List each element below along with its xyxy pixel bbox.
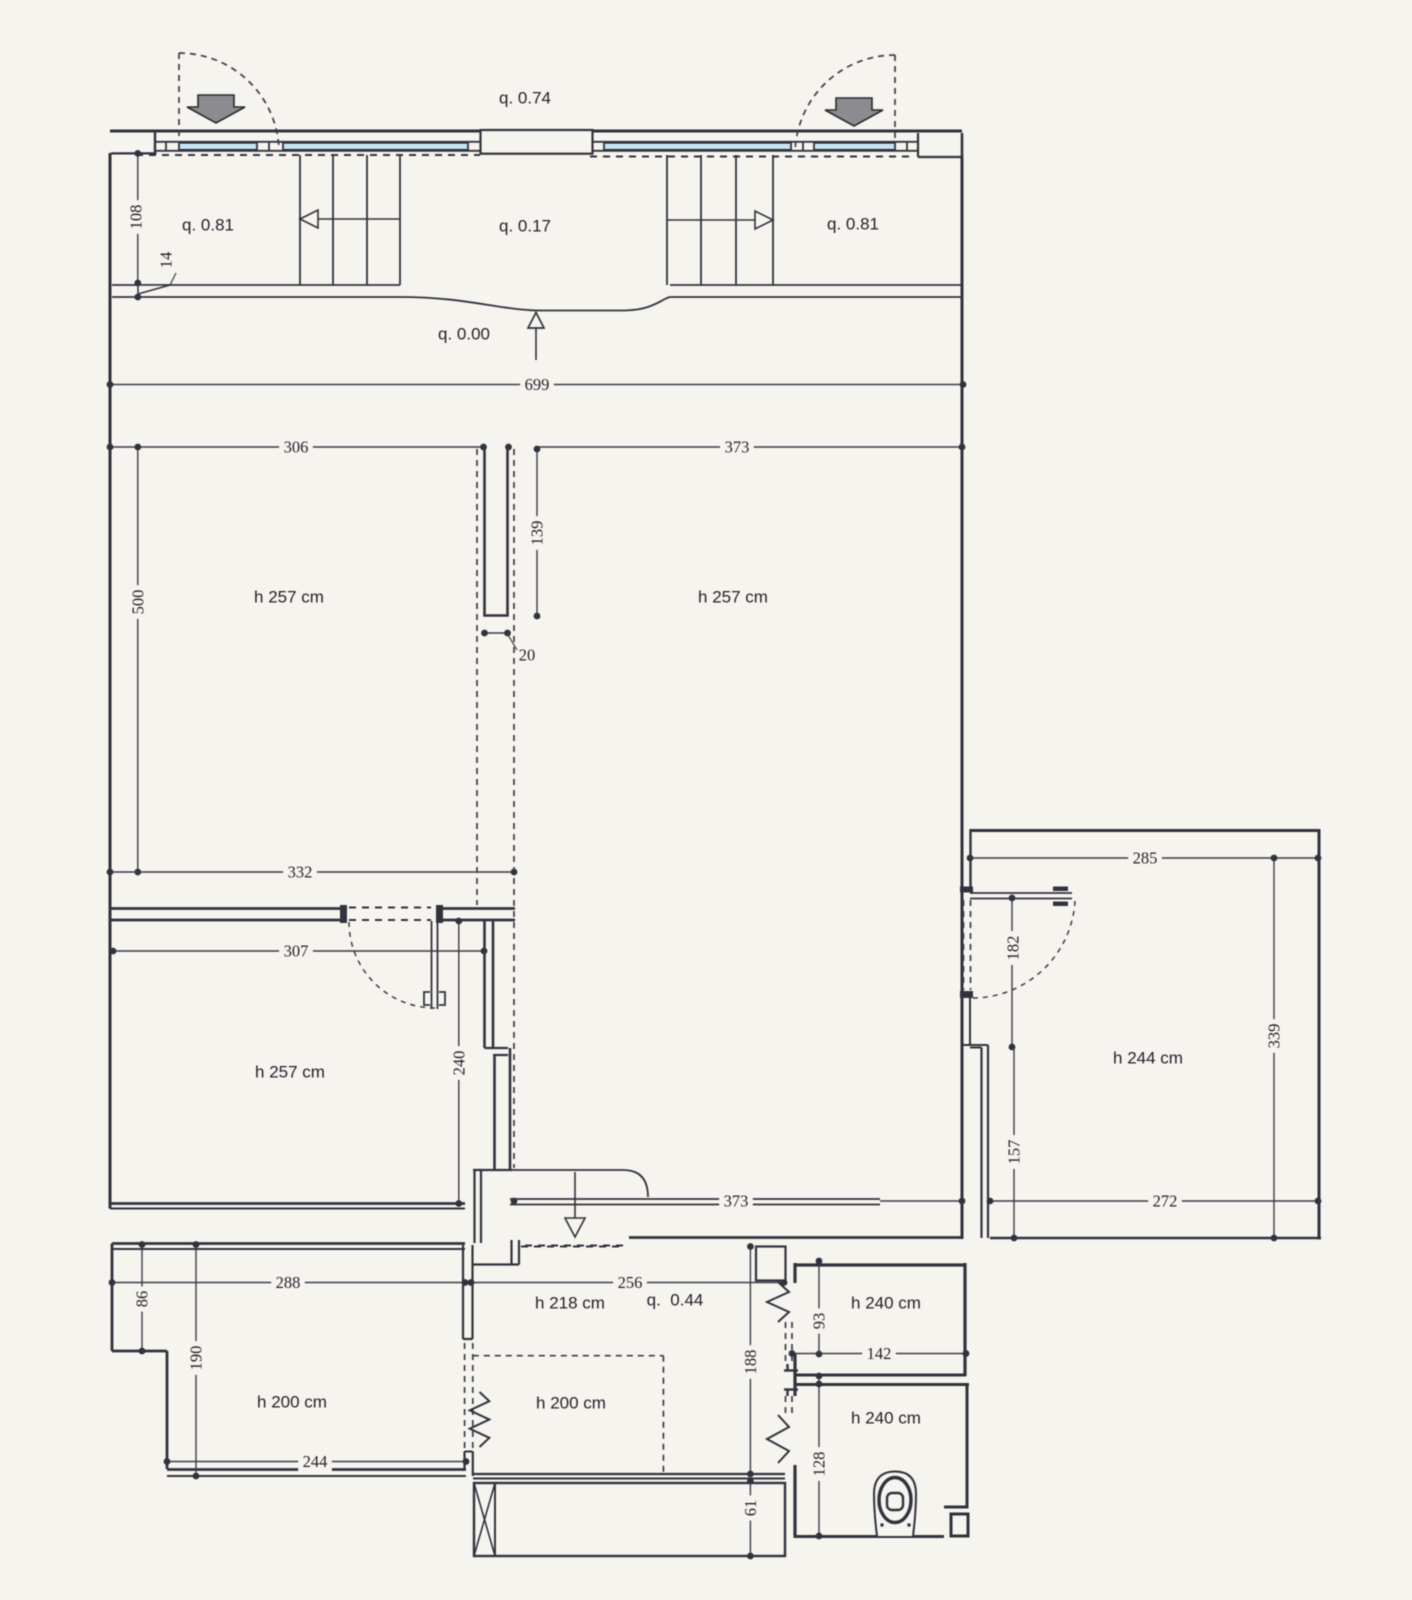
svg-text:q. 0.00: q. 0.00 (438, 325, 490, 344)
svg-text:285: 285 (1133, 849, 1158, 868)
svg-text:142: 142 (867, 1344, 892, 1363)
svg-text:272: 272 (1153, 1192, 1178, 1211)
svg-text:q. 0.81: q. 0.81 (182, 216, 234, 235)
svg-text:61: 61 (741, 1500, 760, 1517)
svg-text:256: 256 (618, 1273, 643, 1292)
svg-text:q. 0.74: q. 0.74 (499, 89, 551, 108)
svg-text:h 244 cm: h 244 cm (1113, 1049, 1183, 1068)
svg-text:h 218 cm: h 218 cm (535, 1294, 605, 1313)
svg-text:h 240 cm: h 240 cm (851, 1409, 921, 1428)
svg-text:500: 500 (128, 590, 147, 615)
svg-text:188: 188 (741, 1350, 760, 1375)
svg-text:h 200 cm: h 200 cm (257, 1393, 327, 1412)
svg-text:244: 244 (303, 1452, 328, 1471)
svg-text:q. 0.17: q. 0.17 (499, 217, 551, 236)
svg-text:h 257 cm: h 257 cm (255, 1063, 325, 1082)
svg-text:306: 306 (284, 438, 309, 457)
svg-text:q. 0.44: q. 0.44 (647, 1291, 704, 1310)
svg-text:20: 20 (519, 646, 536, 665)
svg-text:q. 0.81: q. 0.81 (827, 215, 879, 234)
svg-text:373: 373 (724, 1192, 749, 1211)
svg-text:h 240 cm: h 240 cm (851, 1294, 921, 1313)
svg-text:93: 93 (810, 1313, 829, 1330)
svg-text:288: 288 (276, 1273, 301, 1292)
svg-text:240: 240 (449, 1051, 468, 1076)
svg-text:139: 139 (528, 521, 547, 546)
svg-text:307: 307 (284, 942, 309, 961)
svg-text:h 257 cm: h 257 cm (254, 588, 324, 607)
svg-text:h 257 cm: h 257 cm (698, 588, 768, 607)
svg-text:190: 190 (187, 1346, 206, 1371)
svg-text:157: 157 (1005, 1140, 1024, 1165)
svg-text:373: 373 (725, 438, 750, 457)
svg-text:332: 332 (288, 863, 313, 882)
svg-text:182: 182 (1004, 936, 1023, 961)
svg-text:699: 699 (525, 375, 550, 394)
svg-text:339: 339 (1265, 1024, 1284, 1049)
svg-text:14: 14 (157, 252, 176, 269)
svg-text:128: 128 (810, 1452, 829, 1477)
svg-text:86: 86 (133, 1291, 152, 1308)
svg-text:108: 108 (127, 205, 146, 230)
svg-text:h 200 cm: h 200 cm (536, 1394, 606, 1413)
